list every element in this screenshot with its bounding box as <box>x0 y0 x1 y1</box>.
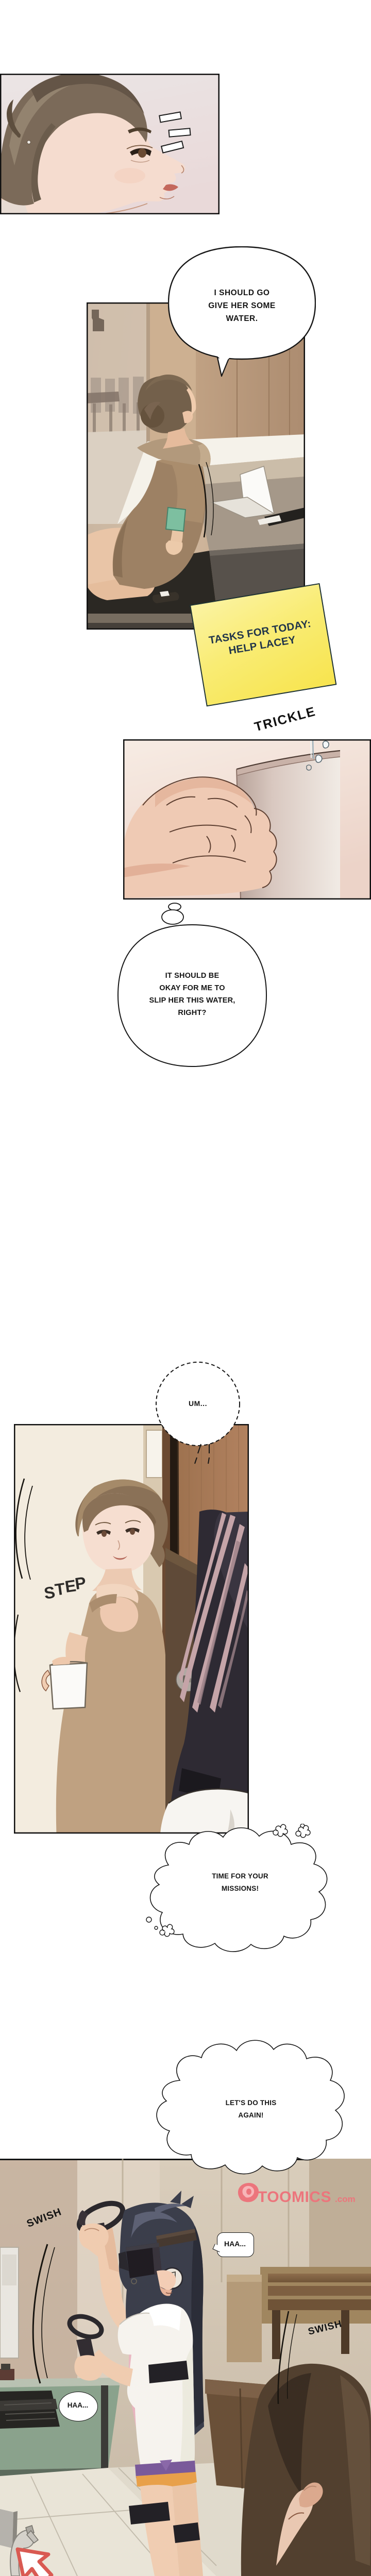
svg-text:.com: .com <box>335 2194 356 2204</box>
svg-text:TOOMICS: TOOMICS <box>258 2189 331 2206</box>
